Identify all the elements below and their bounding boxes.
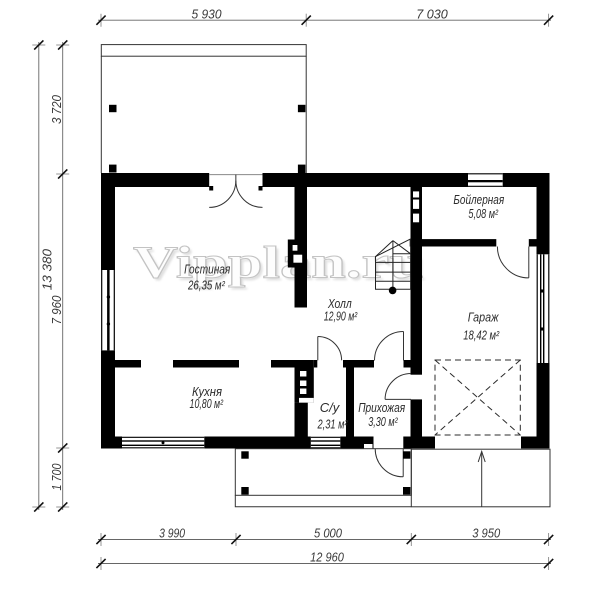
svg-text:Гостиная: Гостиная — [184, 263, 230, 277]
svg-text:12,90 м²: 12,90 м² — [324, 310, 358, 324]
svg-text:5 000: 5 000 — [314, 525, 343, 540]
svg-text:3 950: 3 950 — [472, 525, 501, 540]
svg-text:Гараж: Гараж — [468, 311, 500, 325]
svg-text:18,42 м²: 18,42 м² — [463, 329, 500, 343]
svg-text:7 030: 7 030 — [416, 7, 448, 22]
svg-text:3,30 м²: 3,30 м² — [368, 415, 398, 429]
svg-text:С/у: С/у — [320, 401, 340, 415]
svg-text:Бойлерная: Бойлерная — [453, 193, 504, 207]
svg-text:3 990: 3 990 — [159, 525, 186, 540]
svg-text:3 720: 3 720 — [49, 94, 64, 124]
svg-text:Прихожая: Прихожая — [358, 401, 405, 415]
svg-text:12 960: 12 960 — [310, 550, 344, 565]
svg-text:2,31 м²: 2,31 м² — [317, 418, 348, 432]
svg-text:5,08 м²: 5,08 м² — [468, 207, 498, 221]
svg-text:13 380: 13 380 — [40, 248, 55, 290]
svg-text:10,80 м²: 10,80 м² — [190, 397, 224, 411]
svg-text:1 700: 1 700 — [49, 463, 64, 491]
svg-text:7 960: 7 960 — [49, 295, 64, 325]
svg-text:5 930: 5 930 — [192, 7, 223, 22]
svg-text:26,35 м²: 26,35 м² — [187, 279, 225, 293]
